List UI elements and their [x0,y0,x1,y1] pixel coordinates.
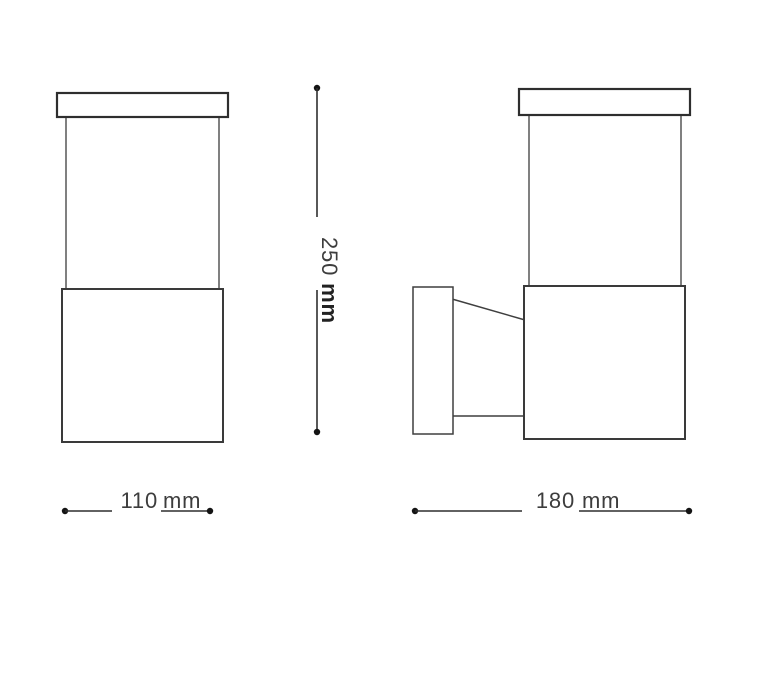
side-body [524,286,685,439]
width-dimension-unit: mm [163,488,201,513]
bracket-arm-top-edge [452,299,525,320]
side-view [413,89,690,439]
height-dimension-unit: mm [317,283,342,324]
front-body [62,289,223,442]
front-cap [57,93,228,117]
depth-dimension: 180 mm [412,488,692,514]
wall-plate [413,287,453,434]
height-dimension: 250mm [314,85,342,435]
depth-dimension-unit: mm [582,488,620,513]
technical-drawing-canvas: 250mm 110 mm 180 mm [0,0,764,680]
height-dimension-value: 250 [317,237,342,276]
width-dimension: 110 mm [62,488,213,514]
side-cap [519,89,690,115]
height-dim-bottom-dot [314,429,320,435]
depth-dim-right-dot [686,508,692,514]
height-dimension-label: 250mm [317,237,342,324]
front-view [57,93,228,442]
depth-dimension-value: 180 [536,488,575,513]
width-dim-right-dot [207,508,213,514]
width-dimension-value: 110 [121,488,158,513]
